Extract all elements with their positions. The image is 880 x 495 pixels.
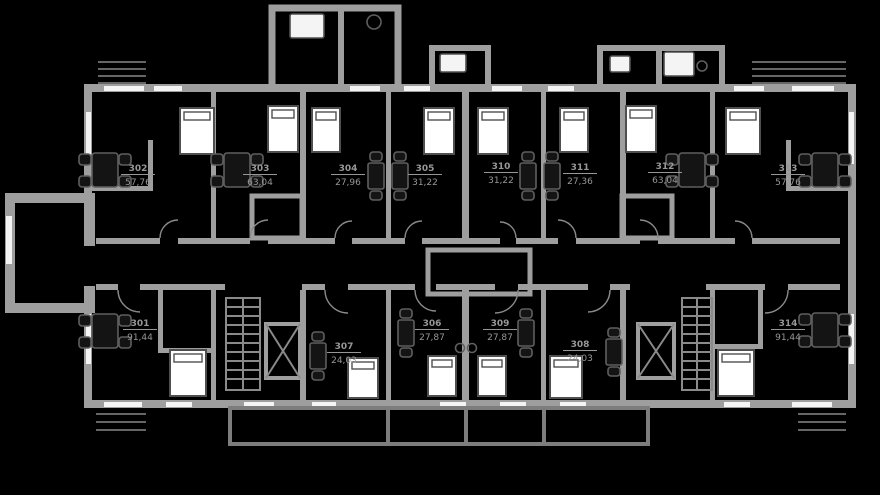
left-annex: [6, 198, 96, 308]
unit-number: 312: [656, 162, 675, 172]
bed-icon: [424, 108, 454, 154]
dining-set-icon: [368, 152, 384, 200]
unit-310-label[interactable]: 310 31,22: [484, 162, 518, 186]
door-swing-arc: [735, 221, 752, 238]
unit-area: 63,04: [247, 178, 273, 188]
door-swing-arc: [558, 220, 576, 238]
bed-icon: [560, 108, 588, 152]
unit-area: 91,44: [775, 333, 801, 343]
unit-area: 31,22: [488, 176, 514, 186]
window: [166, 402, 192, 407]
unit-area: 63,04: [652, 176, 678, 186]
door-swing-arc: [405, 221, 422, 238]
bathroom-box: [622, 196, 672, 238]
door-swing-arc: [118, 290, 140, 312]
bed-icon: [718, 350, 754, 396]
door-swing-arc: [325, 290, 348, 313]
window: [154, 86, 182, 91]
unit-number: 304: [339, 164, 358, 174]
unit-number: 308: [571, 340, 590, 350]
unit-area: 24,03: [331, 356, 357, 366]
door-swing-arc: [500, 222, 516, 238]
unit-area: 57,76: [125, 178, 151, 188]
dining-set-icon: [392, 152, 408, 200]
unit-number: 306: [423, 319, 442, 329]
door-swing-arc: [640, 220, 658, 238]
window: [792, 402, 832, 407]
window: [6, 216, 12, 264]
unit-305-label[interactable]: 305 31,22: [408, 164, 442, 188]
unit-number: 302: [129, 164, 148, 174]
unit-311-label[interactable]: 311 27,36: [563, 163, 597, 187]
dining-set-icon: [310, 332, 326, 380]
unit-307-label[interactable]: 307 24,03: [327, 342, 361, 366]
door-swings: [118, 220, 788, 313]
window: [350, 86, 380, 91]
unit-306-label[interactable]: 306 27,87: [415, 319, 449, 343]
door-swing-arc: [335, 221, 352, 238]
unit-area: 27,96: [335, 178, 361, 188]
unit-number: 301: [131, 319, 150, 329]
unit-number: 313: [779, 164, 798, 174]
unit-number: 309: [491, 319, 510, 329]
window: [792, 86, 834, 91]
window: [492, 86, 522, 91]
right-stair-core: [638, 298, 712, 390]
bed-icon: [268, 106, 298, 152]
unit-number: 310: [492, 162, 511, 172]
bed-icon: [312, 108, 340, 152]
bathtub-icon: [610, 56, 630, 72]
unit-number: 314: [779, 319, 798, 329]
bed-icon: [478, 108, 508, 154]
bathtub-icon: [290, 14, 324, 38]
window: [724, 402, 750, 407]
unit-area: 27,36: [567, 177, 593, 187]
toilet-icon: [697, 61, 707, 71]
elevator-icon: [266, 324, 300, 378]
dining-set-icon: [606, 328, 622, 376]
unit-area: 27,87: [419, 333, 445, 343]
bed-icon: [428, 356, 456, 396]
window: [104, 86, 144, 91]
unit-area: 24,03: [567, 354, 593, 364]
dining-set-icon: [398, 309, 414, 357]
bathtub-icon: [664, 52, 694, 76]
door-swing-arc: [588, 290, 610, 312]
corridor-walls: [96, 238, 840, 294]
window: [548, 86, 574, 91]
bed-icon: [726, 108, 760, 154]
interior-partitions: [92, 140, 848, 353]
bathtub-icon: [440, 54, 466, 72]
left-stair-core: [226, 298, 300, 390]
bed-icon: [170, 350, 206, 396]
staircase-icon: [226, 298, 260, 390]
door-swing-arc: [160, 220, 178, 238]
floor-plan-canvas: 302 57,76 303 63,04 304 27,96 305 31,22 …: [0, 0, 880, 495]
window: [404, 86, 430, 91]
unit-number: 307: [335, 342, 354, 352]
dining-set-icon: [799, 313, 851, 347]
unit-312-label[interactable]: 312 63,04: [648, 162, 682, 186]
bed-icon: [478, 356, 506, 396]
unit-308-label[interactable]: 308 24,03: [563, 340, 597, 364]
top-bathroom-blocks: [272, 8, 722, 88]
unit-area: 57,76: [775, 178, 801, 188]
dining-set-icon: [799, 153, 851, 187]
window: [734, 86, 764, 91]
bed-icon: [626, 106, 656, 152]
toilet-icon: [367, 15, 381, 29]
window: [104, 402, 142, 407]
bed-icon: [180, 108, 214, 154]
staircase-icon: [682, 298, 712, 390]
unit-number: 311: [571, 163, 590, 173]
unit-304-label[interactable]: 304 27,96: [331, 164, 365, 188]
elevator-icon: [638, 324, 674, 378]
unit-area: 27,87: [487, 333, 513, 343]
dining-set-icon: [518, 309, 534, 357]
dining-set-icon: [520, 152, 536, 200]
dining-set-icon: [544, 152, 560, 200]
bathroom-box: [252, 196, 302, 238]
floor-plan-drawing: 302 57,76 303 63,04 304 27,96 305 31,22 …: [0, 0, 880, 495]
unit-number: 303: [251, 164, 270, 174]
unit-number: 305: [416, 164, 435, 174]
unit-area: 91,44: [127, 333, 153, 343]
unit-309-label[interactable]: 309 27,87: [483, 319, 517, 343]
door-swing-arc: [765, 290, 788, 313]
unit-area: 31,22: [412, 178, 438, 188]
